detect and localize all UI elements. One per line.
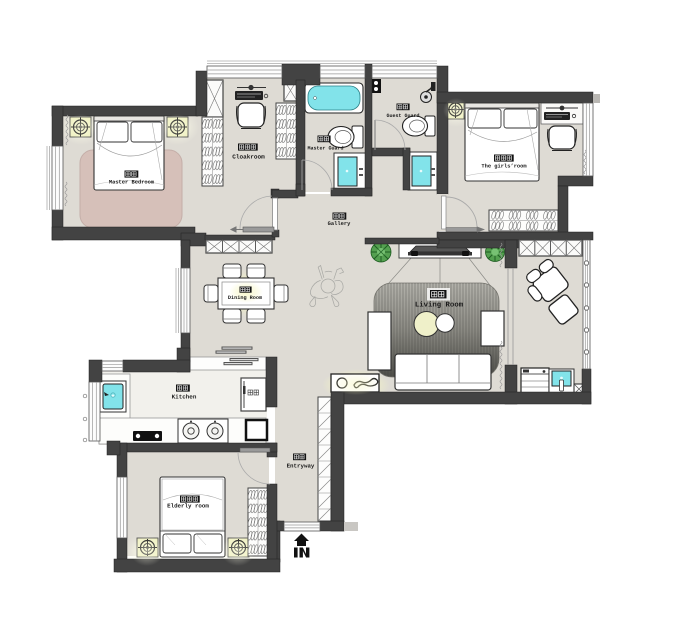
- svg-text:Master Guard: Master Guard: [307, 146, 343, 152]
- svg-text:Master Bedroom: Master Bedroom: [109, 180, 155, 186]
- svg-text:Guest Guard: Guest Guard: [386, 113, 419, 119]
- svg-text:Gallery: Gallery: [328, 221, 351, 227]
- svg-text:Entryway: Entryway: [287, 463, 315, 470]
- svg-text:Dining Room: Dining Room: [228, 295, 262, 301]
- svg-text:Kitchen: Kitchen: [172, 394, 197, 401]
- svg-text:The girls’room: The girls’room: [481, 164, 527, 170]
- svg-text:Elderly room: Elderly room: [167, 503, 209, 510]
- svg-text:Cloakroom: Cloakroom: [232, 154, 265, 161]
- svg-text:Living Room: Living Room: [415, 301, 464, 310]
